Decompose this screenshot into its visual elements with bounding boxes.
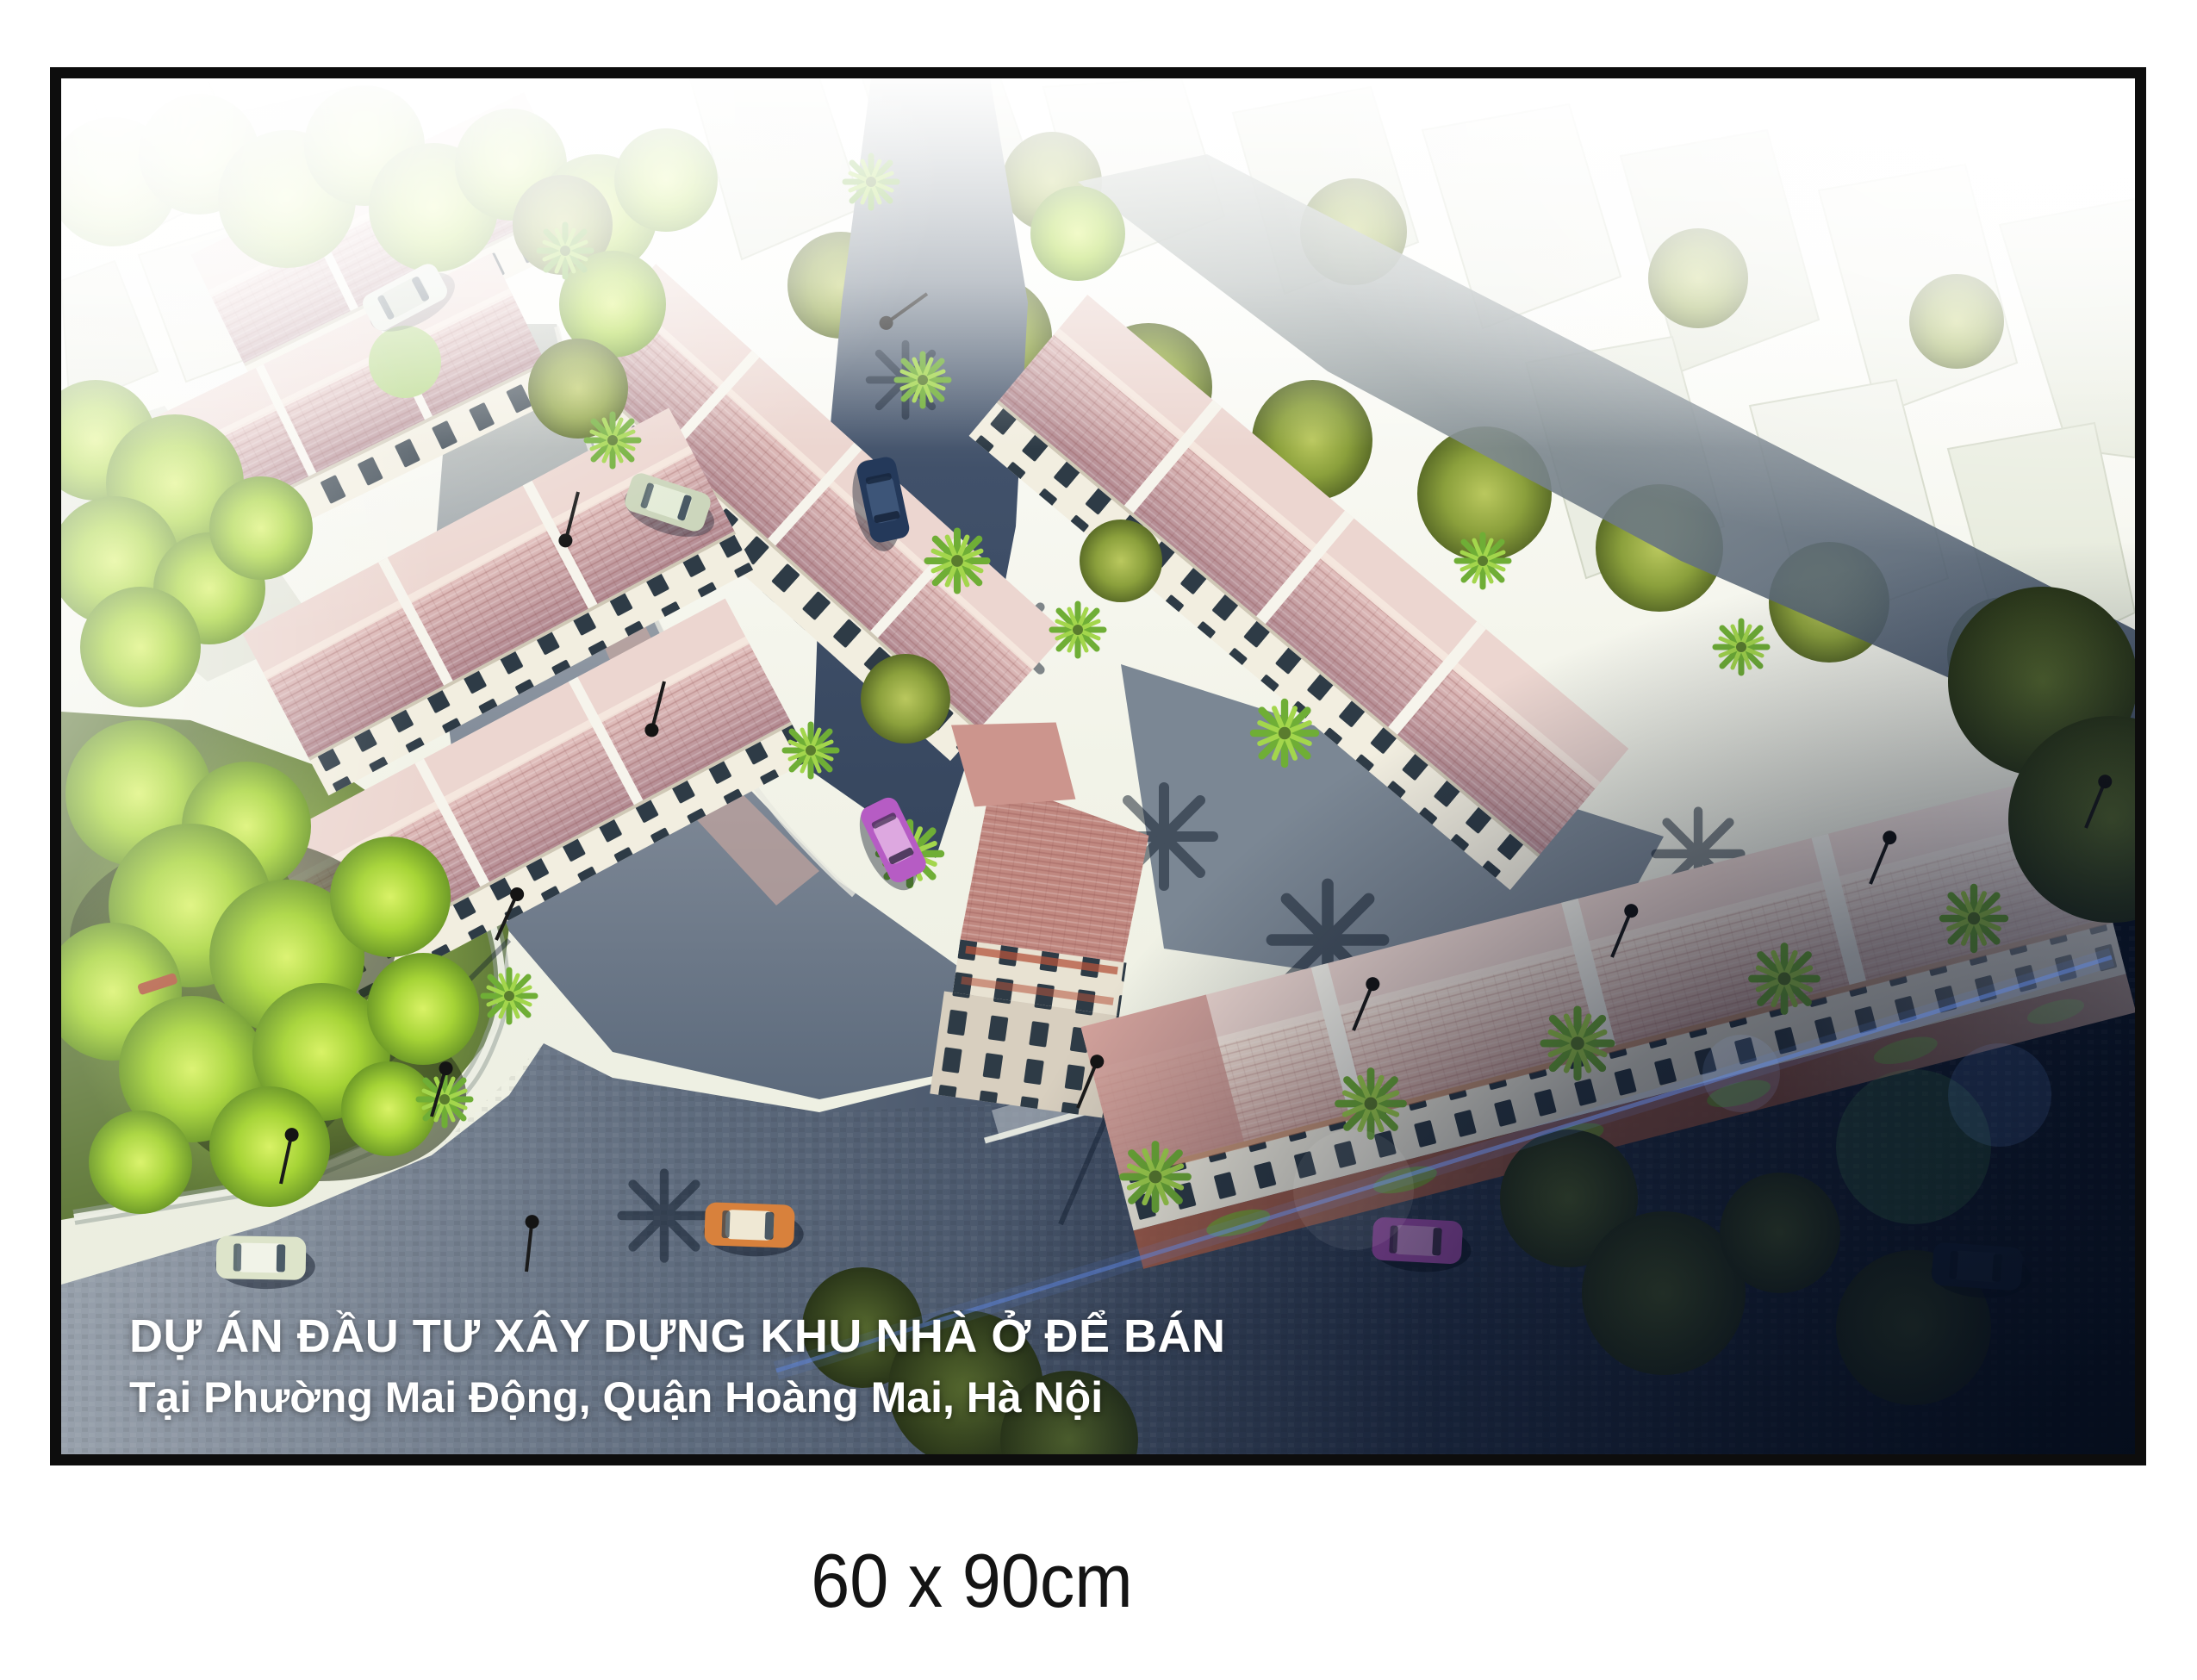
print-size-label: 60 x 90cm: [811, 1537, 1132, 1625]
poster-frame: DỰ ÁN ĐẦU TƯ XÂY DỰNG KHU NHÀ Ở ĐỂ BÁN T…: [50, 67, 2146, 1465]
poster-page: DỰ ÁN ĐẦU TƯ XÂY DỰNG KHU NHÀ Ở ĐỂ BÁN T…: [0, 0, 2197, 1680]
project-location: Tại Phường Mai Động, Quận Hoàng Mai, Hà …: [129, 1374, 1226, 1422]
project-title-overlay: DỰ ÁN ĐẦU TƯ XÂY DỰNG KHU NHÀ Ở ĐỂ BÁN T…: [129, 1311, 1226, 1422]
car: [215, 1235, 315, 1290]
aerial-render: [61, 78, 2135, 1454]
project-title: DỰ ÁN ĐẦU TƯ XÂY DỰNG KHU NHÀ Ở ĐỂ BÁN: [129, 1311, 1226, 1362]
